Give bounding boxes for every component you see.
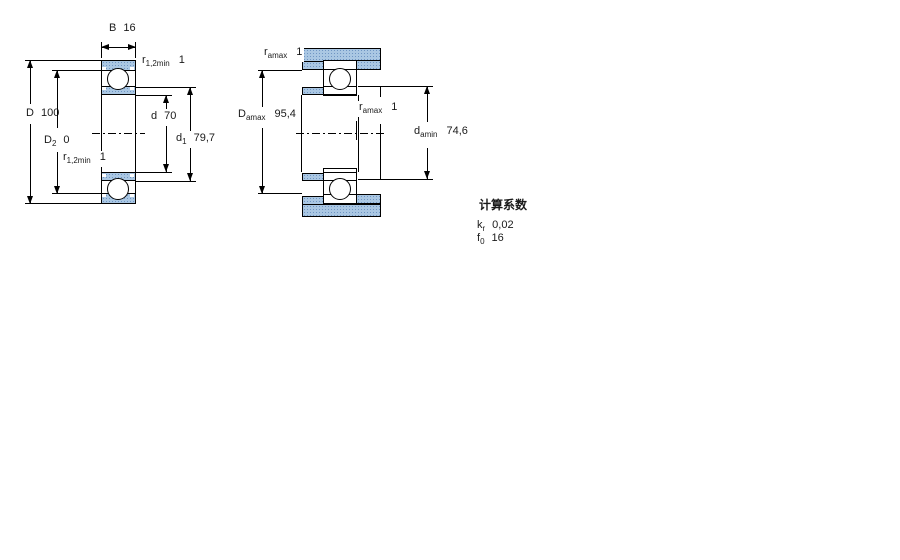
dim-label-D2: D20 xyxy=(42,134,72,150)
dim-line-Damax xyxy=(262,128,263,194)
dim-subscript: amin xyxy=(420,130,437,139)
dim-value: 1 xyxy=(391,101,397,113)
arrowhead-right xyxy=(128,44,136,50)
dim-subscript: 1 xyxy=(182,137,186,146)
construction-line xyxy=(380,124,381,179)
dim-subscript: amax xyxy=(268,51,288,60)
factor-row-kr: kr0,02 xyxy=(477,219,514,233)
dim-value: 1 xyxy=(179,54,185,66)
arrowhead-down xyxy=(27,196,33,204)
extension-line xyxy=(358,179,433,180)
recess-notch xyxy=(102,87,106,90)
dim-line-D xyxy=(30,124,31,204)
ball-bottom xyxy=(329,178,351,200)
dim-symbol: d xyxy=(151,110,157,122)
housing-block-bottom xyxy=(302,204,381,217)
arrowhead-down xyxy=(424,171,430,179)
housing-shoulder-top-left xyxy=(302,61,324,70)
arrowhead-down xyxy=(54,186,60,194)
dim-value: 0 xyxy=(63,134,69,146)
dim-label-d: d70 xyxy=(149,110,178,122)
factor-value: 0,02 xyxy=(492,219,513,231)
dim-label-r-amax-mid: ramax1 xyxy=(357,101,399,117)
recess-notch xyxy=(130,174,134,177)
dim-label-D: D100 xyxy=(24,107,61,119)
factor-subscript: 0 xyxy=(480,237,484,246)
dim-subscript: 2 xyxy=(52,139,56,148)
dim-value: 16 xyxy=(123,22,135,34)
arrowhead-left xyxy=(101,44,109,50)
arrowhead-up xyxy=(259,70,265,78)
recess-notch xyxy=(130,67,134,70)
ball-top xyxy=(107,68,129,90)
factor-row-f0: f016 xyxy=(477,232,504,246)
centerline xyxy=(92,133,145,134)
dim-label-d1: d179,7 xyxy=(174,132,217,148)
calculation-factors-heading: 计算系数 xyxy=(479,196,527,213)
arrowhead-down xyxy=(163,164,169,172)
dim-label-Damax: Damax95,4 xyxy=(236,108,298,124)
dim-symbol: D xyxy=(26,107,34,119)
recess-notch xyxy=(102,174,106,177)
housing-seat-top-right xyxy=(356,60,381,70)
arrowhead-up xyxy=(424,86,430,94)
dim-label-B: B16 xyxy=(107,22,138,34)
factor-value: 16 xyxy=(492,232,504,244)
arrowhead-up xyxy=(27,60,33,68)
dim-value: 1 xyxy=(296,46,302,58)
housing-seat-bottom-right xyxy=(356,194,381,204)
dim-symbol: D xyxy=(238,108,246,120)
arrowhead-up xyxy=(163,95,169,103)
dim-label-damin: damin74,6 xyxy=(412,125,470,141)
dim-value: 79,7 xyxy=(194,132,215,144)
dim-value: 95,4 xyxy=(275,108,296,120)
extension-line xyxy=(136,172,172,173)
bearing-drawing-canvas: B16 r1,2min1 D100 D20 r1,2min1 d70 xyxy=(0,0,900,560)
r-amax-leader-line xyxy=(380,86,381,97)
ball-bottom xyxy=(107,178,129,200)
recess-notch xyxy=(130,194,134,197)
dim-value: 74,6 xyxy=(446,125,467,137)
dim-symbol: D xyxy=(44,134,52,146)
dim-label-r-amax-top: ramax1 xyxy=(262,46,304,62)
dim-line-D2 xyxy=(57,70,58,128)
dim-value: 70 xyxy=(164,110,176,122)
recess-notch xyxy=(102,194,106,197)
extension-line xyxy=(136,181,196,182)
dim-subscript: 1,2min xyxy=(67,156,91,165)
extension-line xyxy=(25,203,101,204)
shaft-shoulder-bottom-left xyxy=(302,173,324,181)
dim-subscript: amax xyxy=(363,106,383,115)
arrowhead-up xyxy=(187,87,193,95)
dim-subscript: amax xyxy=(246,113,266,122)
dim-label-r-top: r1,2min1 xyxy=(140,54,187,70)
dim-label-r-bottom: r1,2min1 xyxy=(61,151,108,167)
centerline xyxy=(296,133,386,134)
extension-line xyxy=(358,86,433,87)
arrowhead-up xyxy=(54,70,60,78)
dim-value: 1 xyxy=(100,151,106,163)
dim-subscript: 1,2min xyxy=(146,59,170,68)
construction-line xyxy=(356,121,357,140)
recess-notch xyxy=(102,67,106,70)
shaft-shoulder-top-left xyxy=(302,87,324,95)
extension-line xyxy=(25,60,101,61)
dim-symbol: B xyxy=(109,22,116,34)
arrowhead-down xyxy=(187,173,193,181)
arrowhead-down xyxy=(259,186,265,194)
recess-notch xyxy=(130,87,134,90)
ball-top xyxy=(329,68,351,90)
